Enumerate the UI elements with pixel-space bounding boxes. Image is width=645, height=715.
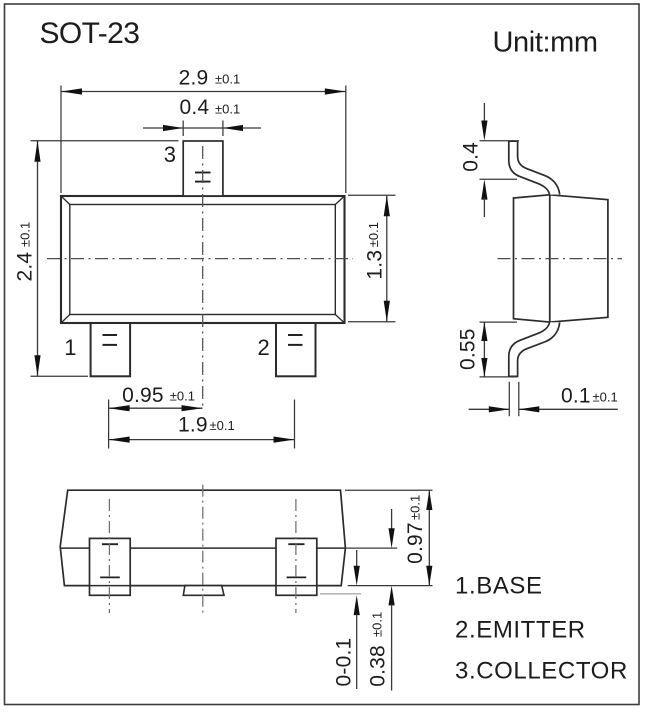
svg-text:Unit:mm: Unit:mm [493, 27, 598, 59]
svg-text:±0.1: ±0.1 [408, 495, 423, 520]
svg-text:0.4: 0.4 [459, 142, 482, 172]
svg-text:1: 1 [64, 335, 76, 360]
svg-text:3.COLLECTOR: 3.COLLECTOR [455, 658, 628, 685]
svg-text:3: 3 [164, 142, 176, 167]
svg-text:0-0.1: 0-0.1 [333, 638, 356, 687]
svg-text:0.4: 0.4 [180, 96, 210, 119]
svg-text:0.1: 0.1 [561, 384, 591, 407]
svg-text:2.4: 2.4 [14, 252, 37, 282]
svg-text:SOT-23: SOT-23 [40, 17, 140, 50]
svg-text:±0.1: ±0.1 [210, 418, 235, 433]
svg-text:1.BASE: 1.BASE [455, 573, 543, 600]
svg-text:±0.1: ±0.1 [215, 101, 240, 116]
svg-text:2: 2 [258, 335, 270, 360]
svg-text:0.95: 0.95 [122, 384, 164, 407]
svg-text:0.55: 0.55 [457, 328, 480, 370]
svg-text:±0.1: ±0.1 [18, 222, 33, 247]
svg-text:±0.1: ±0.1 [215, 72, 240, 87]
svg-text:±0.1: ±0.1 [593, 389, 618, 404]
svg-text:1.3: 1.3 [364, 250, 387, 280]
svg-text:±0.1: ±0.1 [170, 388, 195, 403]
svg-text:2.9: 2.9 [179, 66, 209, 89]
svg-text:0.97: 0.97 [404, 522, 427, 564]
svg-text:1.9: 1.9 [178, 413, 208, 436]
svg-text:±0.1: ±0.1 [366, 222, 381, 247]
svg-text:0.38: 0.38 [367, 645, 390, 687]
svg-text:±0.1: ±0.1 [370, 612, 385, 637]
svg-text:2.EMITTER: 2.EMITTER [455, 617, 586, 644]
